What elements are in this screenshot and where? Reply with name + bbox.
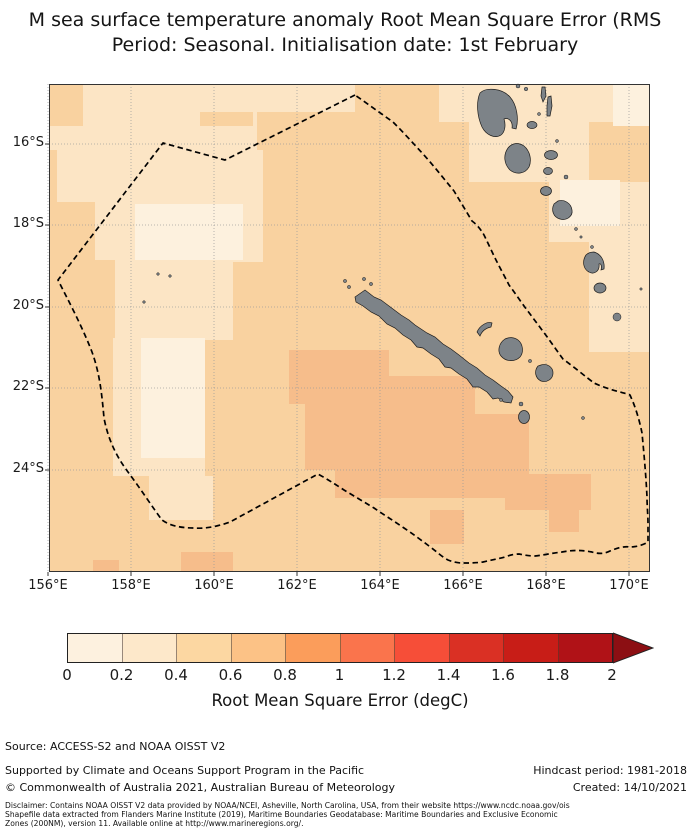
islet <box>519 402 523 406</box>
colorbar-segment <box>559 634 613 662</box>
island <box>527 122 537 129</box>
map-area <box>49 84 650 572</box>
island <box>541 187 552 196</box>
rmse-patch <box>430 510 464 544</box>
islet <box>500 399 503 402</box>
rmse-patch <box>505 474 591 510</box>
lon-tick-label: 168°E <box>514 578 578 593</box>
rmse-patch <box>549 510 579 532</box>
rmse-patch <box>49 84 83 126</box>
colorbar-axis-label: Root Mean Square Error (degC) <box>67 691 613 710</box>
islet <box>575 228 578 231</box>
lon-tick-label: 166°E <box>431 578 495 593</box>
islet <box>362 277 365 280</box>
lon-tick-label: 156°E <box>16 578 80 593</box>
islet <box>613 313 621 321</box>
islet <box>582 417 585 420</box>
lon-tick-label: 162°E <box>265 578 329 593</box>
lon-tick-label: 160°E <box>182 578 246 593</box>
islet <box>143 301 146 304</box>
rmse-patch <box>141 338 205 458</box>
island-lifou <box>499 338 523 361</box>
colorbar-segment <box>504 634 559 662</box>
islet <box>157 273 160 276</box>
footer-created-date: Created: 14/10/2021 <box>573 781 687 794</box>
islet <box>556 140 559 143</box>
colorbar-tick-label: 1.4 <box>427 666 471 684</box>
rmse-patch <box>93 560 119 572</box>
lat-tick-label: 22°S <box>0 379 44 394</box>
rmse-patch <box>289 350 389 404</box>
colorbar-segment <box>177 634 232 662</box>
colorbar-extend-arrow <box>613 632 654 664</box>
colorbar-tick-label: 1 <box>318 666 362 684</box>
lat-tick-label: 16°S <box>0 135 44 150</box>
rmse-patch <box>135 204 243 260</box>
colorbar-tick-label: 1.2 <box>372 666 416 684</box>
lon-tick-label: 158°E <box>99 578 163 593</box>
rmse-patch <box>149 476 213 520</box>
figure-title-line1: M sea surface temperature anomaly Root M… <box>0 9 690 31</box>
footer-copyright: © Commonwealth of Australia 2021, Austra… <box>5 781 395 794</box>
colorbar-segment <box>123 634 178 662</box>
islet <box>528 359 531 362</box>
colorbar-segment <box>68 634 123 662</box>
lat-tick-label: 20°S <box>0 298 44 313</box>
colorbar-segment <box>286 634 341 662</box>
rmse-patch <box>335 470 525 498</box>
rmse-patch <box>255 84 355 112</box>
colorbar-tick-label: 2 <box>590 666 634 684</box>
colorbar-segment <box>232 634 287 662</box>
island <box>519 411 530 424</box>
islet <box>640 288 642 290</box>
island <box>545 151 558 160</box>
colorbar <box>67 633 613 663</box>
rmse-patch <box>560 180 620 226</box>
island <box>594 283 606 293</box>
colorbar-tick-label: 0.4 <box>154 666 198 684</box>
island-mare <box>536 364 553 381</box>
footer-hindcast-period: Hindcast period: 1981-2018 <box>533 764 687 777</box>
footer-supported-by: Supported by Climate and Oceans Support … <box>5 764 364 777</box>
source-text: Source: ACCESS-S2 and NOAA OISST V2 <box>5 740 225 753</box>
islet <box>564 175 568 179</box>
lat-tick-label: 18°S <box>0 216 44 231</box>
rmse-patch <box>200 112 253 126</box>
colorbar-tick-label: 0.6 <box>209 666 253 684</box>
disclaimer-line1: Disclaimer: Contains NOAA OISST V2 data … <box>5 801 690 810</box>
lon-tick-label: 170°E <box>597 578 661 593</box>
rmse-patch <box>115 260 233 340</box>
disclaimer-line2: Shapefile data extracted from Flanders M… <box>5 810 690 819</box>
rmse-patch <box>181 552 233 572</box>
colorbar-segment <box>395 634 450 662</box>
islet <box>347 285 350 288</box>
islet <box>538 113 541 116</box>
colorbar-tick-label: 1.8 <box>536 666 580 684</box>
colorbar-tick-label: 0.2 <box>100 666 144 684</box>
colorbar-segment <box>450 634 505 662</box>
islet <box>591 246 594 249</box>
colorbar-tick-label: 1.6 <box>481 666 525 684</box>
islet <box>524 87 528 91</box>
lon-tick-label: 164°E <box>348 578 412 593</box>
disclaimer-line3: Zones (200NM), version 11. Available onl… <box>5 819 690 828</box>
figure-page: M sea surface temperature anomaly Root M… <box>0 0 690 839</box>
rmse-patch <box>449 414 529 474</box>
islet <box>580 236 582 238</box>
islet <box>343 279 346 282</box>
rmse-patch <box>613 84 650 126</box>
lat-tick-label: 24°S <box>0 461 44 476</box>
colorbar-tick-label: 0 <box>45 666 89 684</box>
islet <box>169 275 172 278</box>
islet <box>369 282 372 285</box>
map-canvas <box>49 84 650 572</box>
island <box>544 168 553 175</box>
colorbar-tick-label: 0.8 <box>263 666 307 684</box>
figure-title-line2: Period: Seasonal. Initialisation date: 1… <box>0 34 690 56</box>
colorbar-segment <box>341 634 396 662</box>
